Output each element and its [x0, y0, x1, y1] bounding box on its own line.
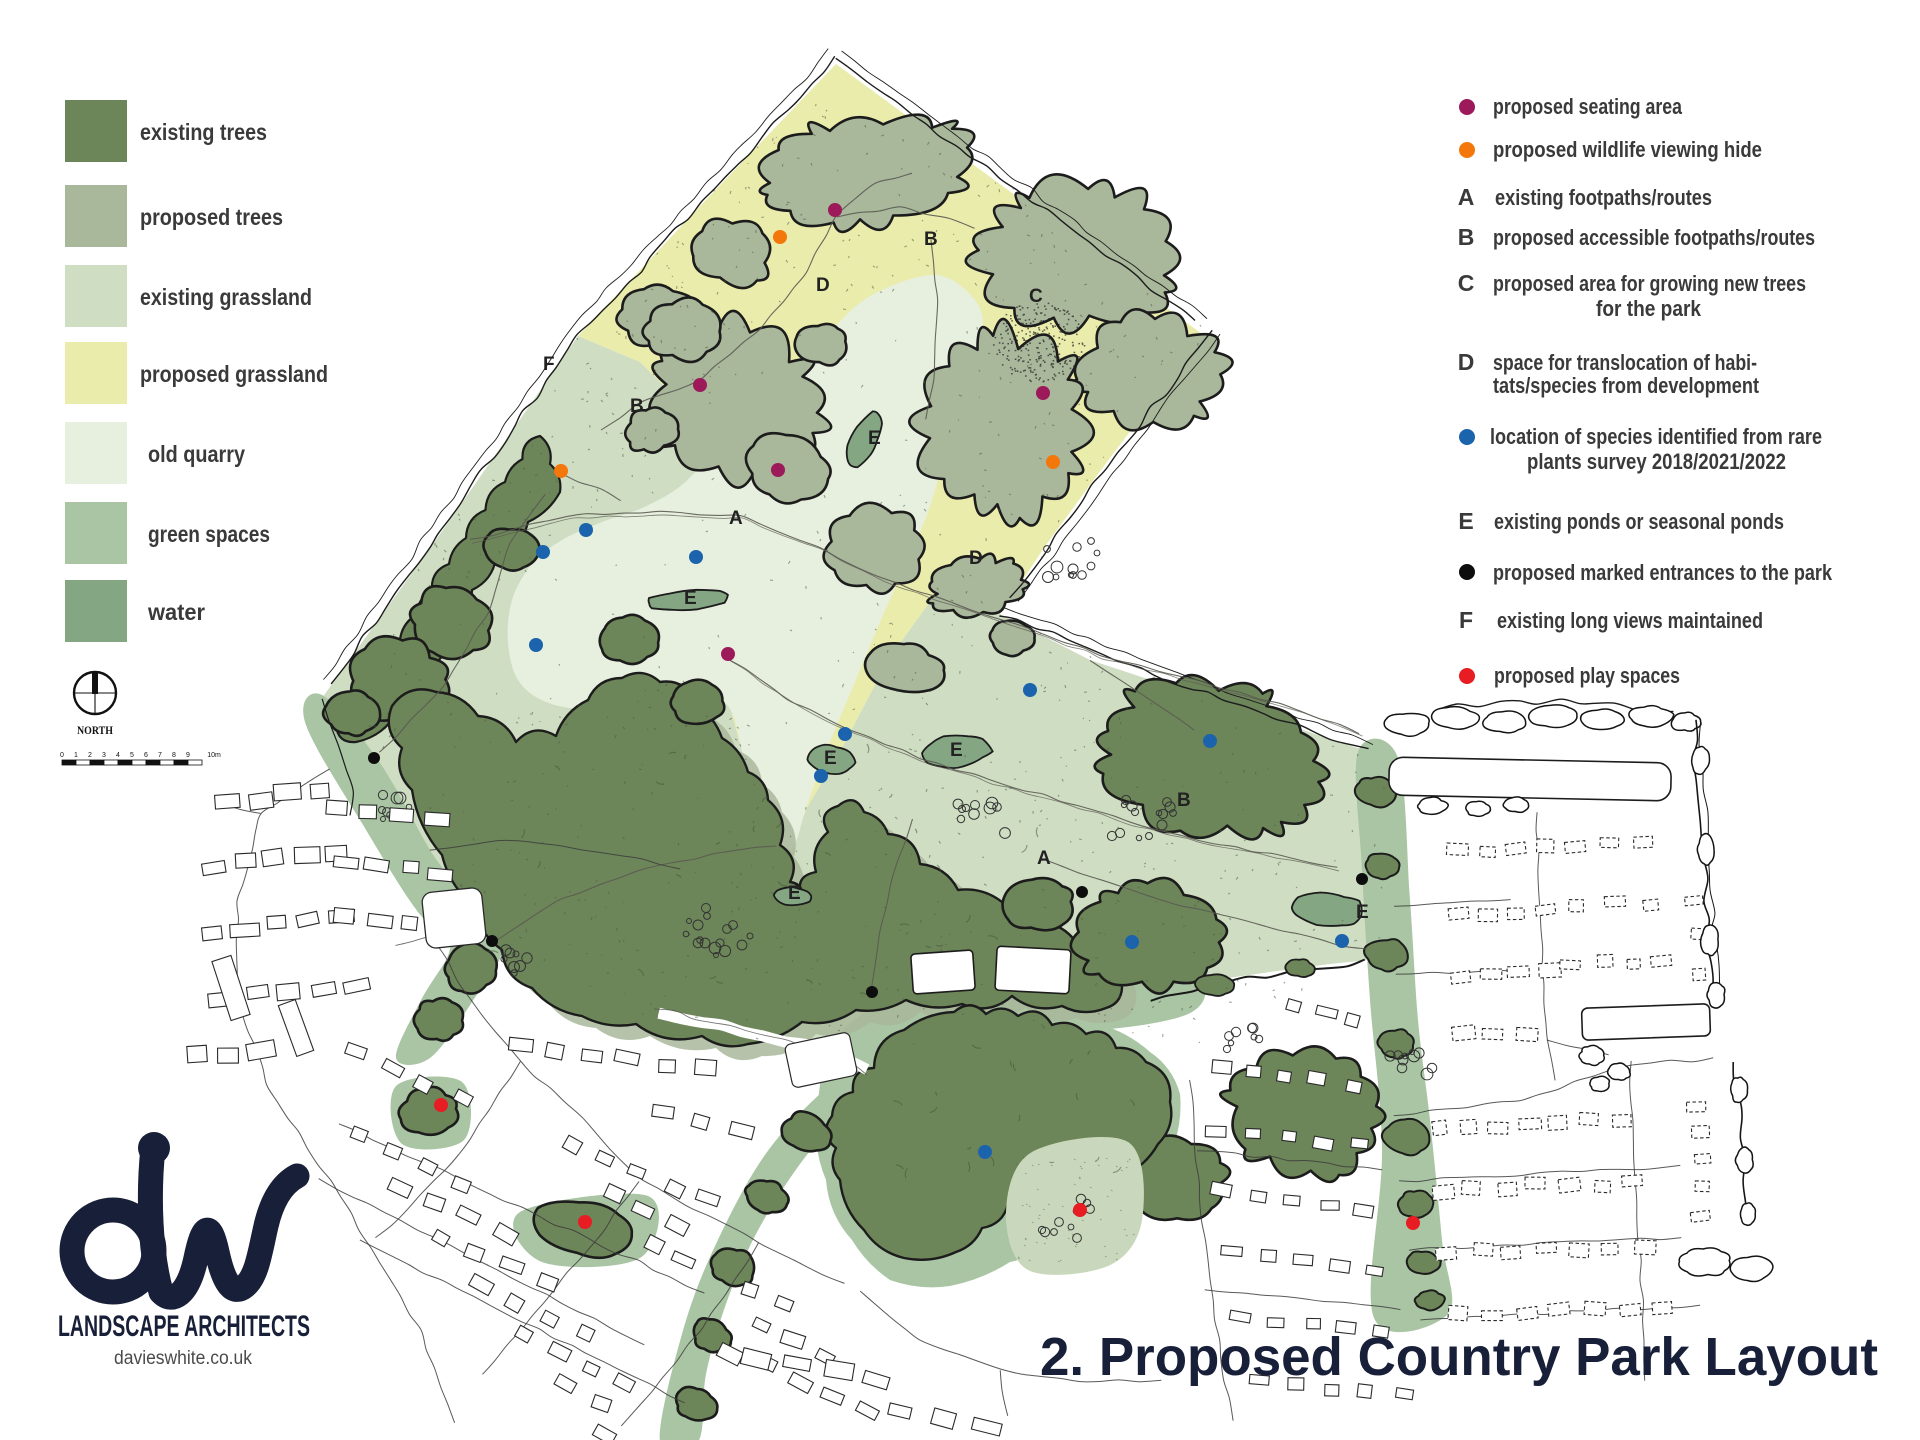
svg-text:A: A: [1037, 848, 1051, 869]
svg-text:8: 8: [172, 752, 176, 759]
svg-text:B: B: [1177, 790, 1191, 811]
svg-text:for the park: for the park: [1596, 296, 1702, 321]
svg-text:proposed marked entrances to t: proposed marked entrances to the park: [1493, 560, 1833, 585]
svg-text:2. Proposed Country Park Layou: 2. Proposed Country Park Layout: [1040, 1327, 1878, 1387]
svg-text:B: B: [1458, 224, 1475, 250]
svg-text:proposed grassland: proposed grassland: [140, 361, 328, 387]
svg-text:10m: 10m: [207, 752, 221, 759]
svg-text:C: C: [1029, 286, 1043, 307]
svg-text:F: F: [1459, 607, 1473, 633]
svg-text:E: E: [824, 748, 837, 769]
svg-text:water: water: [147, 599, 205, 625]
svg-text:A: A: [1458, 184, 1475, 210]
svg-text:existing trees: existing trees: [140, 119, 267, 145]
svg-text:B: B: [924, 229, 938, 250]
svg-text:space for translocation of hab: space for translocation of habi-: [1493, 350, 1757, 375]
svg-text:old quarry: old quarry: [148, 441, 245, 467]
svg-text:D: D: [1458, 349, 1475, 375]
svg-text:davieswhite.co.uk: davieswhite.co.uk: [114, 1348, 252, 1369]
svg-text:2: 2: [88, 752, 92, 759]
svg-text:1: 1: [74, 752, 78, 759]
svg-text:C: C: [1458, 270, 1475, 296]
svg-text:proposed accessible footpaths/: proposed accessible footpaths/routes: [1493, 225, 1815, 250]
svg-text:NORTH: NORTH: [77, 723, 114, 737]
svg-text:proposed area for growing new: proposed area for growing new trees: [1493, 271, 1806, 296]
svg-text:existing ponds or seasonal po: existing ponds or seasonal ponds: [1494, 509, 1784, 534]
svg-text:F: F: [543, 354, 555, 375]
svg-text:proposed play spaces: proposed play spaces: [1494, 663, 1680, 688]
svg-text:proposed trees: proposed trees: [140, 204, 283, 230]
svg-text:E: E: [788, 883, 801, 904]
svg-text:existing footpaths/routes: existing footpaths/routes: [1495, 185, 1712, 210]
svg-text:tats/species from development: tats/species from development: [1493, 373, 1760, 398]
svg-text:proposed seating area: proposed seating area: [1493, 94, 1683, 119]
svg-text:4: 4: [116, 752, 120, 759]
svg-text:E: E: [684, 588, 697, 609]
svg-text:proposed wildlife viewing hid: proposed wildlife viewing hide: [1493, 137, 1762, 162]
svg-text:existing long views maintained: existing long views maintained: [1497, 608, 1763, 633]
svg-text:LANDSCAPE ARCHITECTS: LANDSCAPE ARCHITECTS: [58, 1310, 310, 1343]
svg-text:0: 0: [60, 752, 64, 759]
svg-text:9: 9: [186, 752, 190, 759]
svg-text:E: E: [1356, 902, 1369, 923]
svg-text:E: E: [868, 428, 881, 449]
svg-text:6: 6: [144, 752, 148, 759]
svg-text:7: 7: [158, 752, 162, 759]
svg-text:D: D: [816, 275, 830, 296]
svg-text:3: 3: [102, 752, 106, 759]
svg-text:D: D: [969, 548, 983, 569]
svg-text:location of species identified: location of species identified from rare: [1490, 424, 1822, 449]
svg-text:E: E: [1458, 508, 1473, 534]
svg-text:E: E: [950, 740, 963, 761]
svg-text:green spaces: green spaces: [148, 521, 270, 547]
svg-text:existing grassland: existing grassland: [140, 284, 312, 310]
svg-text:plants survey 2018/2021/2022: plants survey 2018/2021/2022: [1527, 449, 1786, 474]
svg-text:5: 5: [130, 752, 134, 759]
svg-text:A: A: [729, 508, 743, 529]
svg-text:B: B: [630, 396, 644, 417]
